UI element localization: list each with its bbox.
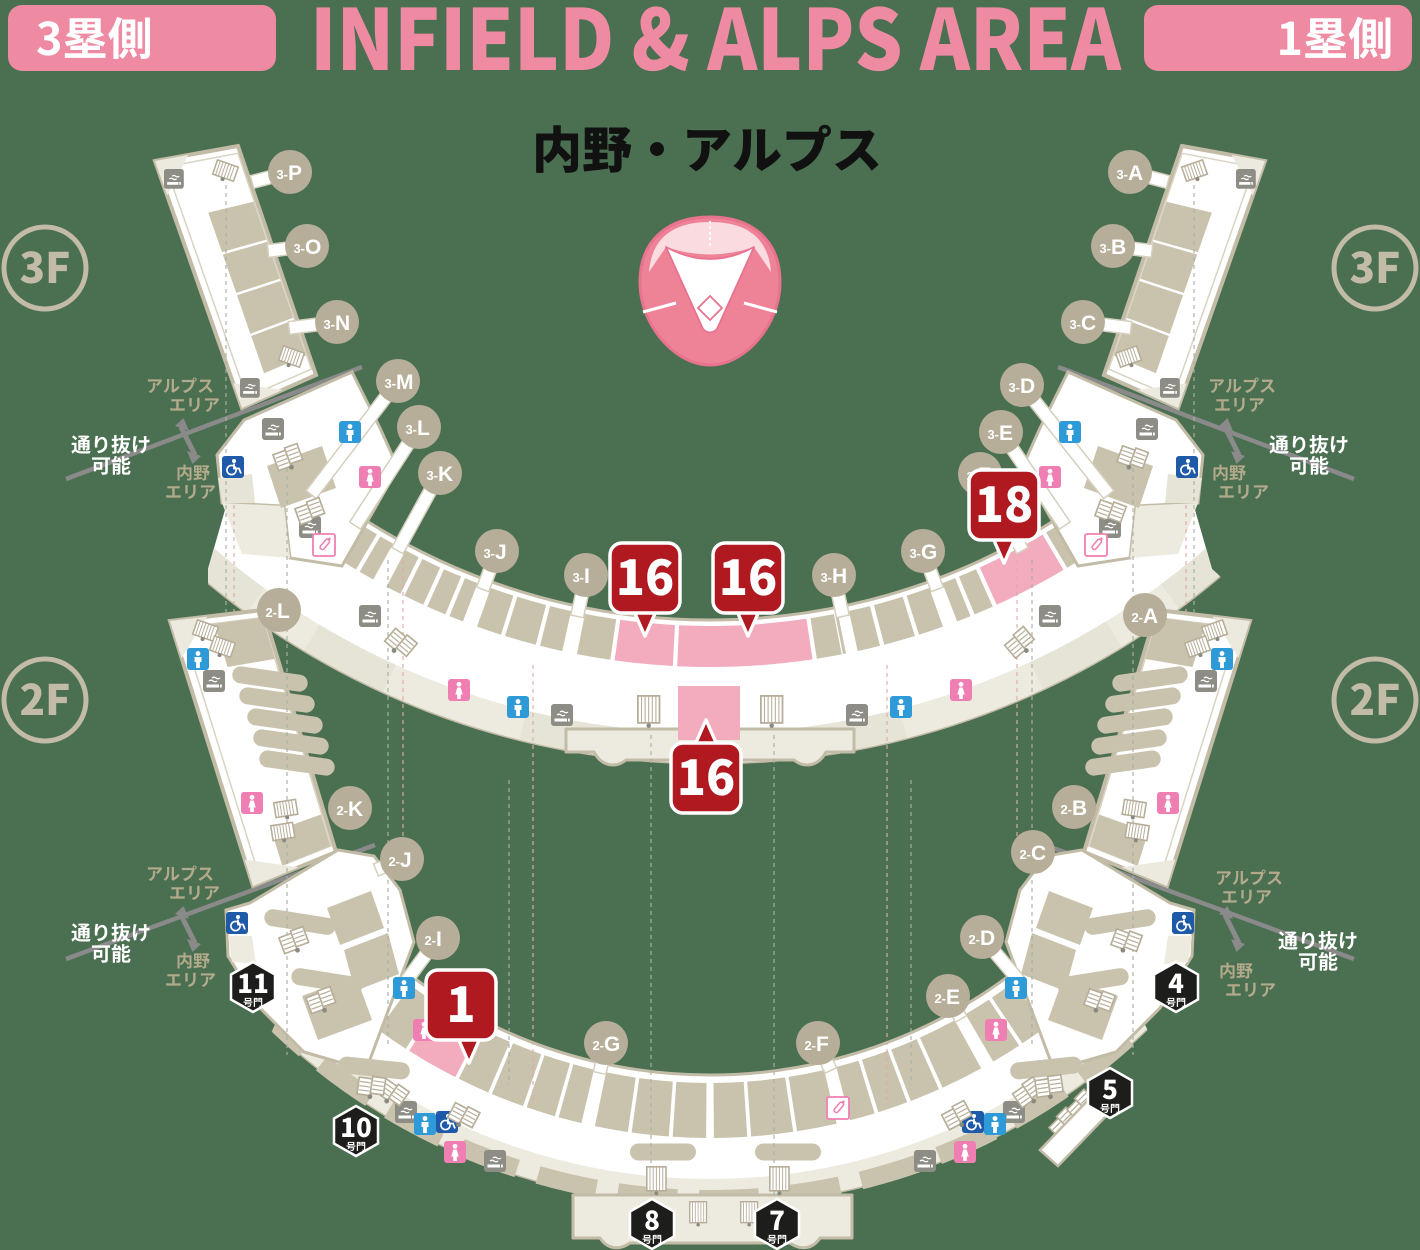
svg-text:3-: 3- <box>1069 317 1081 332</box>
svg-text:3-: 3- <box>987 427 999 442</box>
svg-text:2-: 2- <box>1131 610 1143 625</box>
svg-text:3-: 3- <box>276 167 288 182</box>
svg-text:3-: 3- <box>1116 167 1128 182</box>
svg-text:M: M <box>396 371 414 394</box>
svg-text:3-: 3- <box>483 546 495 561</box>
svg-text:2-: 2- <box>1019 847 1031 862</box>
svg-text:J: J <box>400 849 412 872</box>
svg-text:2-: 2- <box>968 932 980 947</box>
svg-text:H: H <box>832 565 847 588</box>
svg-text:G: G <box>921 541 937 564</box>
svg-text:2-: 2- <box>592 1038 604 1053</box>
svg-text:I: I <box>436 928 442 951</box>
svg-text:G: G <box>604 1033 620 1056</box>
svg-text:3-: 3- <box>1099 241 1111 256</box>
svg-text:2-: 2- <box>424 933 436 948</box>
svg-text:A: A <box>1128 162 1143 185</box>
svg-text:2-: 2- <box>934 991 946 1006</box>
svg-text:I: I <box>584 565 590 588</box>
svg-text:3-: 3- <box>323 317 335 332</box>
svg-text:O: O <box>305 236 321 259</box>
svg-text:N: N <box>335 312 350 335</box>
svg-text:3-: 3- <box>909 546 921 561</box>
svg-text:L: L <box>417 417 430 440</box>
svg-text:D: D <box>1020 375 1035 398</box>
svg-text:J: J <box>495 541 507 564</box>
svg-text:2-: 2- <box>804 1038 816 1053</box>
svg-text:F: F <box>816 1033 829 1056</box>
svg-text:2-: 2- <box>265 605 277 620</box>
svg-text:3-: 3- <box>820 570 832 585</box>
svg-text:K: K <box>348 798 363 821</box>
svg-text:C: C <box>1031 842 1046 865</box>
svg-text:L: L <box>277 600 290 623</box>
svg-text:K: K <box>438 463 453 486</box>
svg-text:B: B <box>1072 797 1087 820</box>
svg-text:2-: 2- <box>336 803 348 818</box>
svg-text:E: E <box>946 986 960 1009</box>
svg-text:A: A <box>1143 605 1158 628</box>
svg-text:E: E <box>999 422 1013 445</box>
svg-text:2-: 2- <box>1060 802 1072 817</box>
svg-text:B: B <box>1111 236 1126 259</box>
svg-text:P: P <box>288 162 302 185</box>
svg-text:C: C <box>1081 312 1096 335</box>
svg-text:3-: 3- <box>1008 380 1020 395</box>
svg-text:D: D <box>980 927 995 950</box>
svg-text:3-: 3- <box>384 376 396 391</box>
svg-text:2-: 2- <box>388 854 400 869</box>
svg-text:3-: 3- <box>405 422 417 437</box>
svg-text:3-: 3- <box>426 468 438 483</box>
svg-text:3-: 3- <box>293 241 305 256</box>
svg-text:3-: 3- <box>572 570 584 585</box>
